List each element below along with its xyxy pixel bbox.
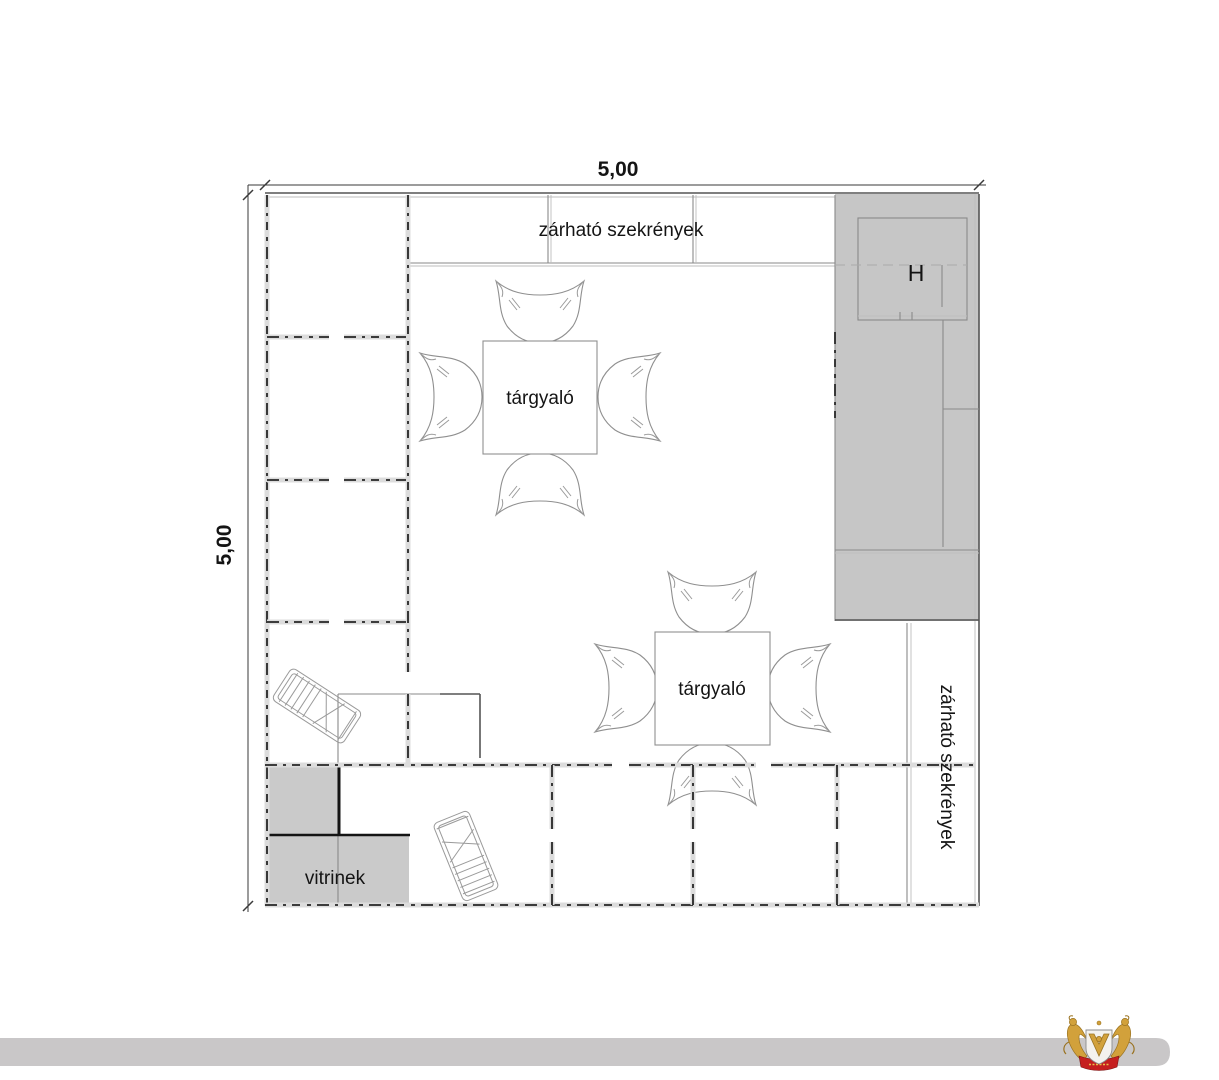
chair-icon (420, 353, 482, 441)
display-cases-label: vitrinek (305, 868, 366, 889)
dimension-left: 5,00 (213, 185, 253, 912)
stacked-chair-2 (433, 810, 500, 902)
dimension-top: 5,00 (248, 158, 986, 190)
stacked-chair-1 (271, 667, 362, 745)
footer-bar (0, 1038, 1170, 1066)
floor-plan-page: H tárgyaló tárgyaló (0, 0, 1219, 1080)
crest-top-ornament (1097, 1021, 1101, 1025)
chair-icon (668, 743, 756, 805)
shield-roundel (1096, 1036, 1101, 1041)
meeting-set-1: tárgyaló (420, 281, 660, 515)
meeting-set-2: tárgyaló (595, 572, 830, 805)
right-cabinets-label: zárható szekrények (936, 685, 957, 850)
chair-icon (598, 353, 660, 441)
chair-icon (496, 453, 584, 515)
dimension-left-value: 5,00 (213, 525, 236, 566)
chair-icon (595, 644, 657, 732)
meeting-table-1-label: tárgyaló (506, 388, 574, 409)
meeting-table-2-label: tárgyaló (678, 679, 746, 700)
chair-icon (768, 644, 830, 732)
chair-icon (496, 281, 584, 343)
chair-icon (668, 572, 756, 634)
floor-plan-drawing: H tárgyaló tárgyaló (0, 0, 1219, 1080)
utility-block-area (835, 194, 979, 621)
top-cabinets-label: zárható szekrények (539, 220, 704, 241)
room-h-label: H (908, 260, 925, 286)
dimension-top-value: 5,00 (598, 158, 639, 181)
